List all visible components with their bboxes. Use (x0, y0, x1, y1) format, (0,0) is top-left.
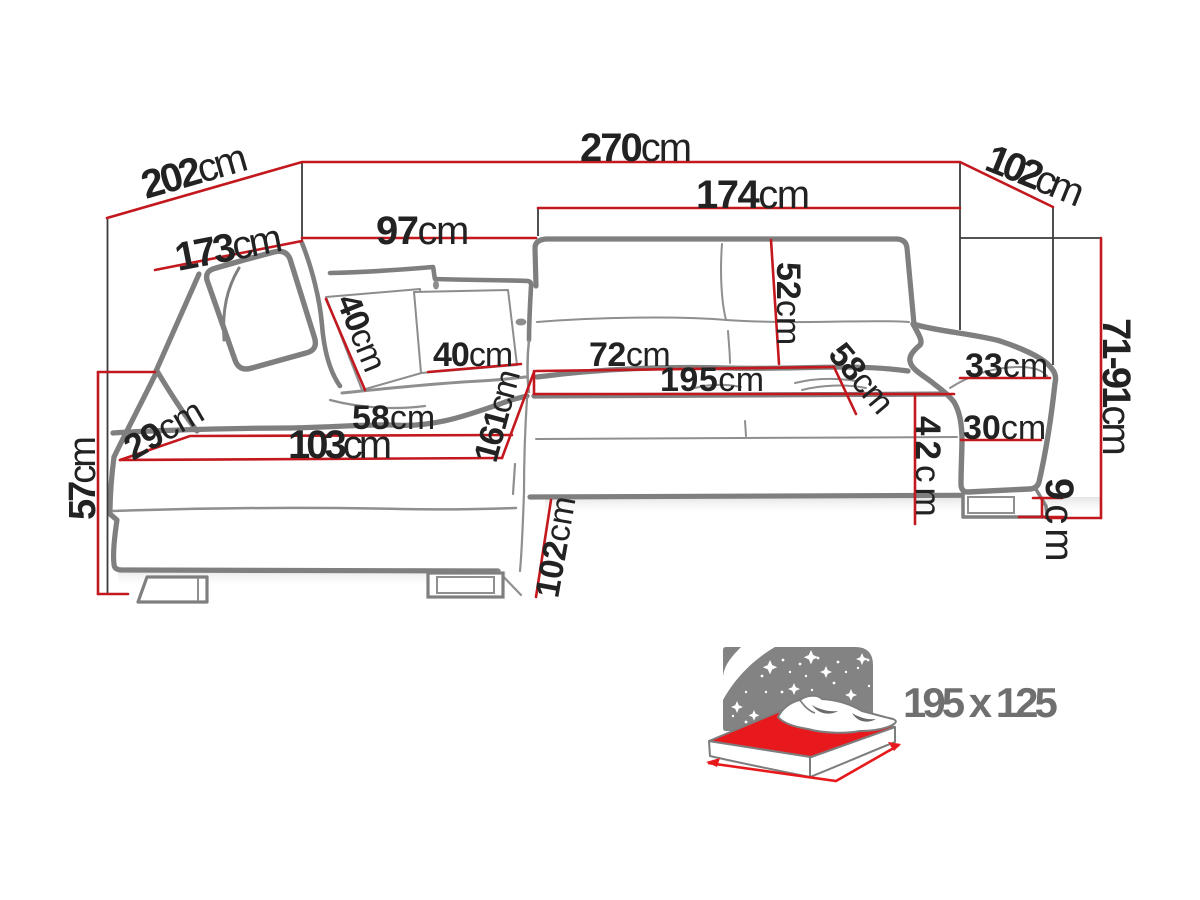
svg-text:71-91cm: 71-91cm (1094, 318, 1138, 453)
svg-text:174cm: 174cm (696, 173, 809, 217)
svg-text:58cm: 58cm (352, 399, 435, 437)
svg-text:40cm: 40cm (433, 336, 512, 374)
svg-text:30cm: 30cm (963, 409, 1046, 447)
svg-text:270cm: 270cm (580, 126, 690, 170)
svg-text:33cm: 33cm (965, 347, 1048, 385)
svg-text:42cm: 42cm (908, 416, 947, 522)
svg-text:97cm: 97cm (376, 209, 468, 253)
svg-text:52cm: 52cm (769, 262, 807, 345)
svg-text:9cm: 9cm (1037, 478, 1081, 566)
svg-text:57cm: 57cm (62, 438, 104, 520)
svg-text:195cm: 195cm (660, 361, 765, 399)
svg-text:195 x 125: 195 x 125 (903, 679, 1057, 726)
svg-text:72cm: 72cm (589, 336, 670, 374)
